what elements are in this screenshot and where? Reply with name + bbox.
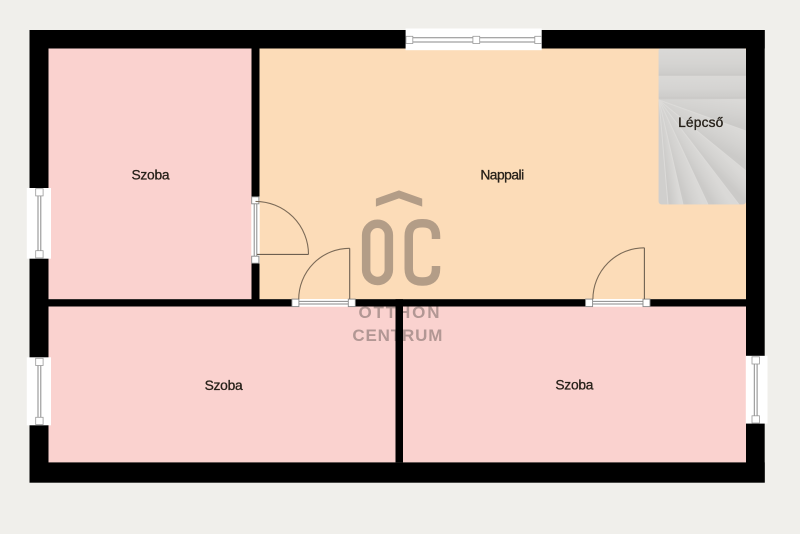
svg-text:Szoba: Szoba bbox=[131, 168, 169, 183]
svg-text:Lépcső: Lépcső bbox=[678, 115, 724, 130]
svg-text:Szoba: Szoba bbox=[555, 378, 593, 393]
svg-text:Szoba: Szoba bbox=[205, 378, 243, 393]
svg-text:Nappali: Nappali bbox=[480, 168, 524, 183]
